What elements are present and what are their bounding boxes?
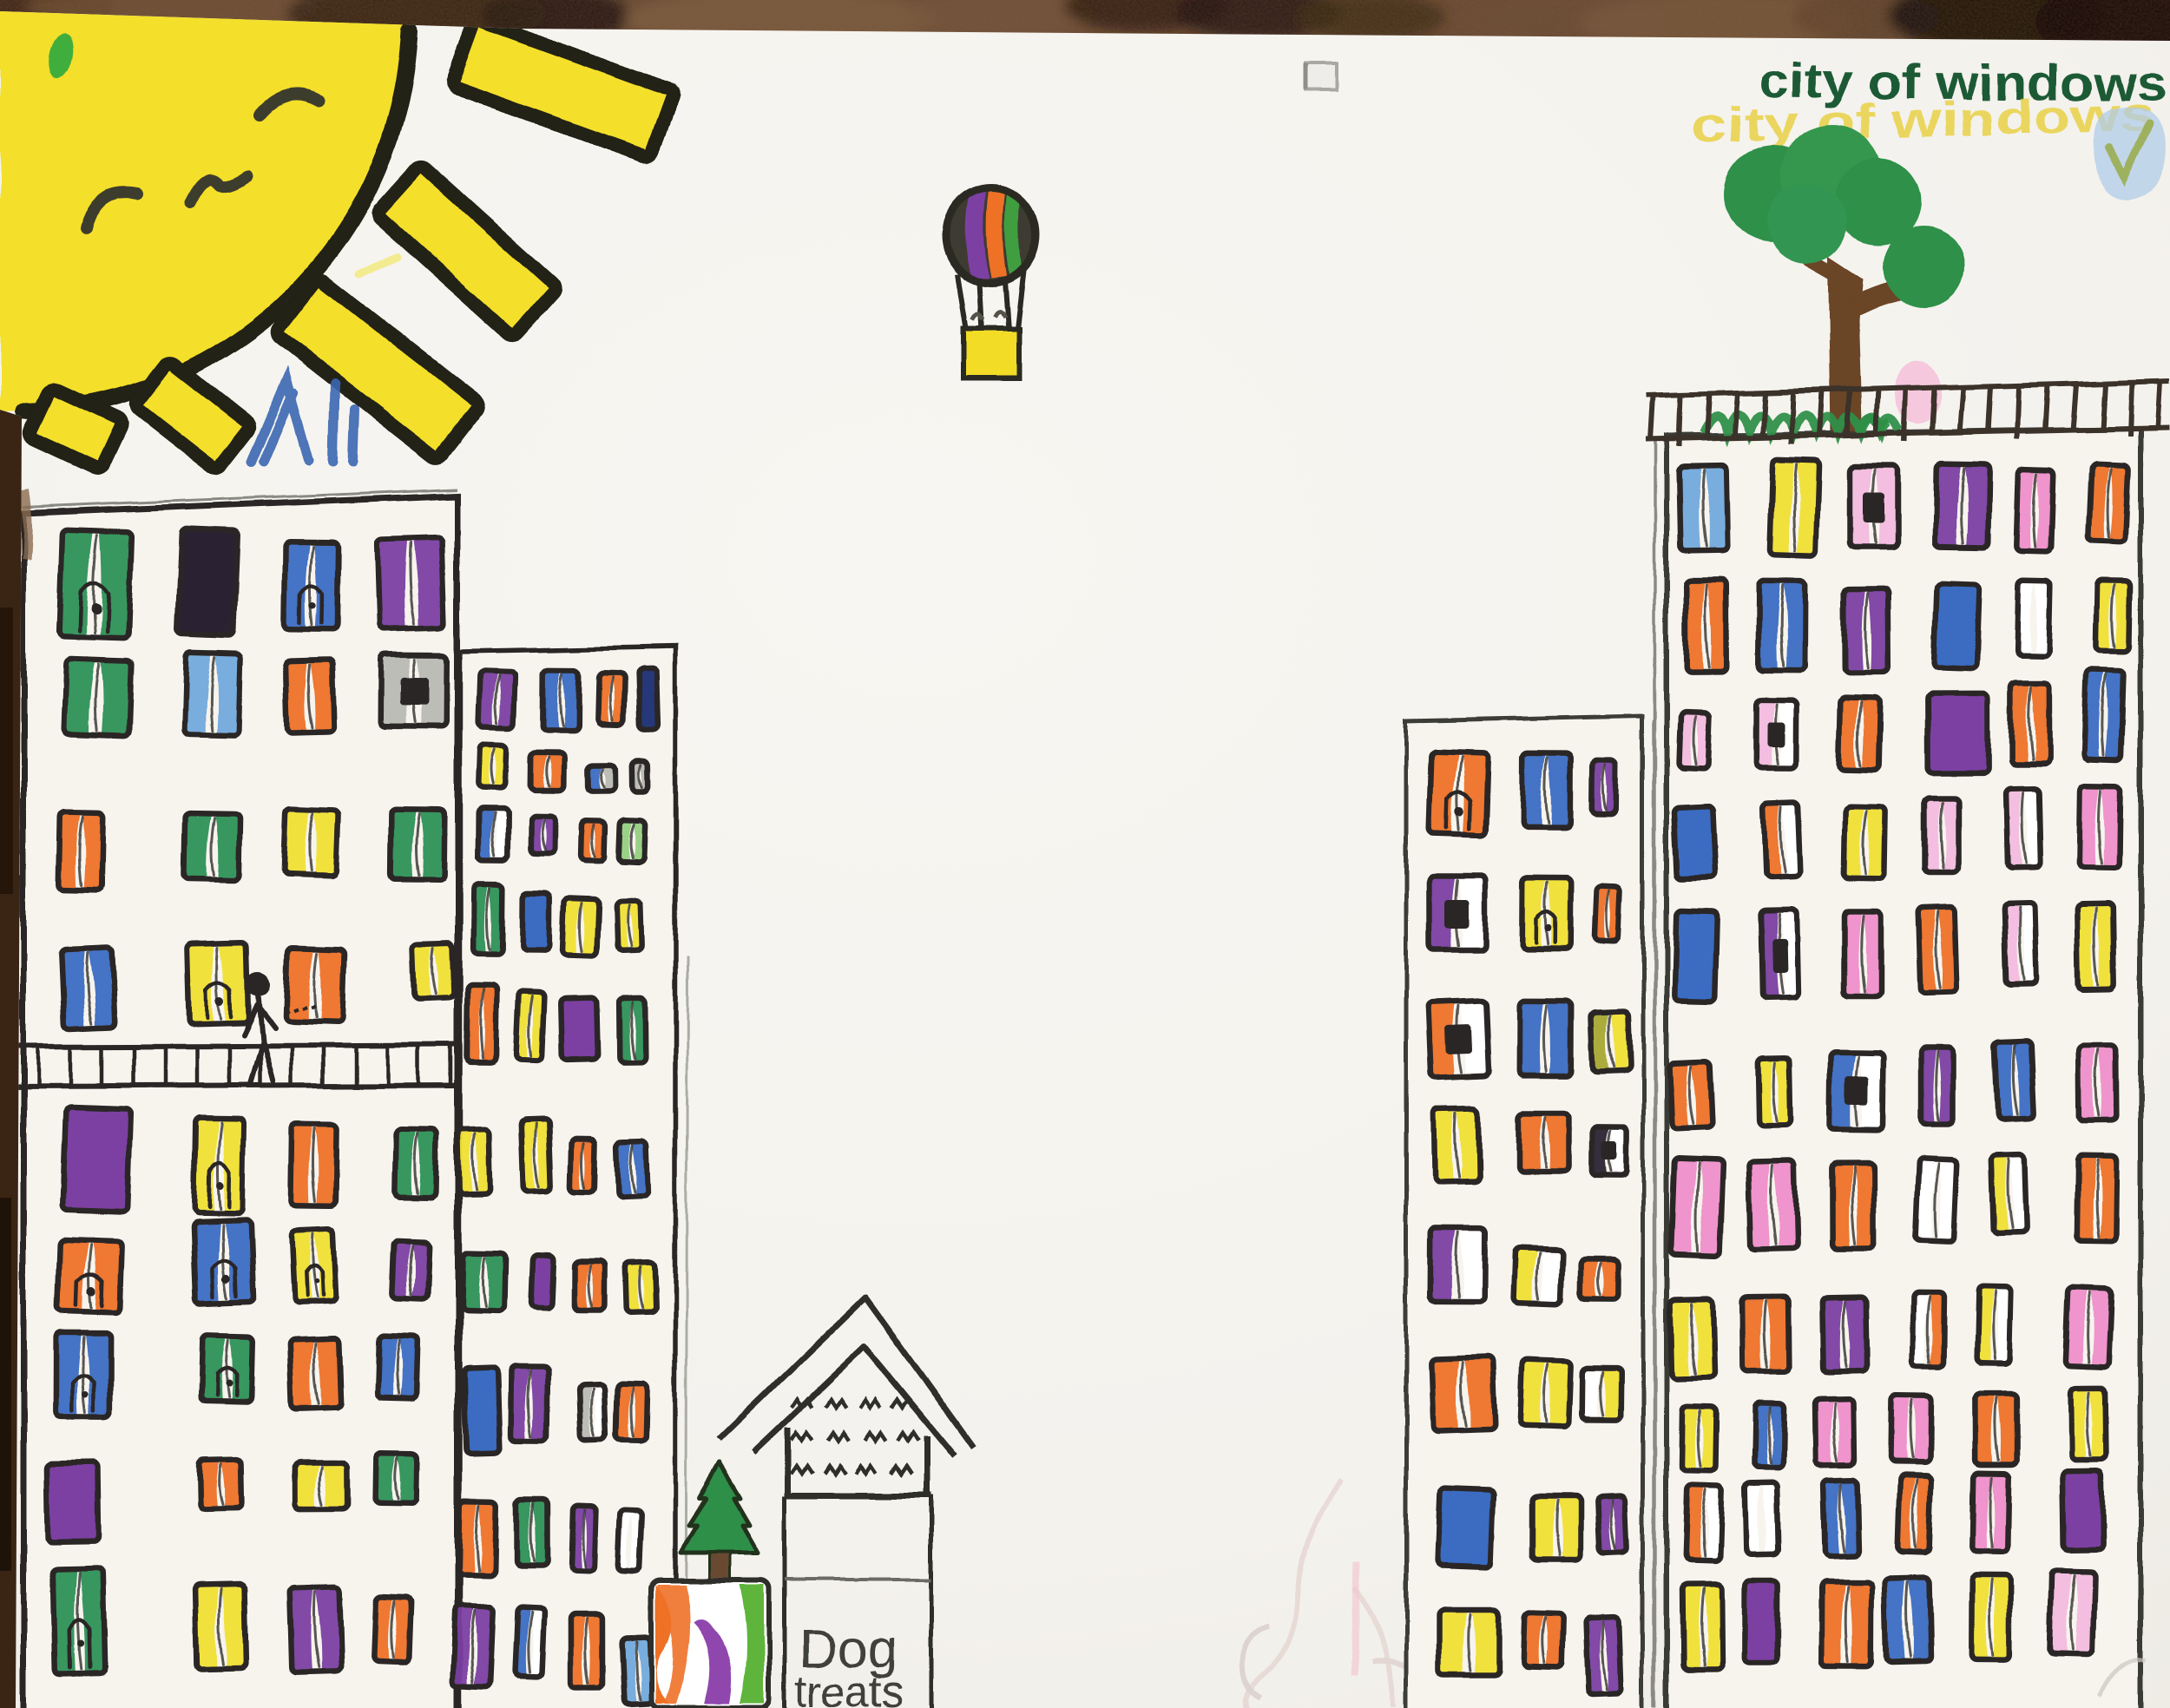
svg-text:treats: treats bbox=[795, 1667, 904, 1708]
